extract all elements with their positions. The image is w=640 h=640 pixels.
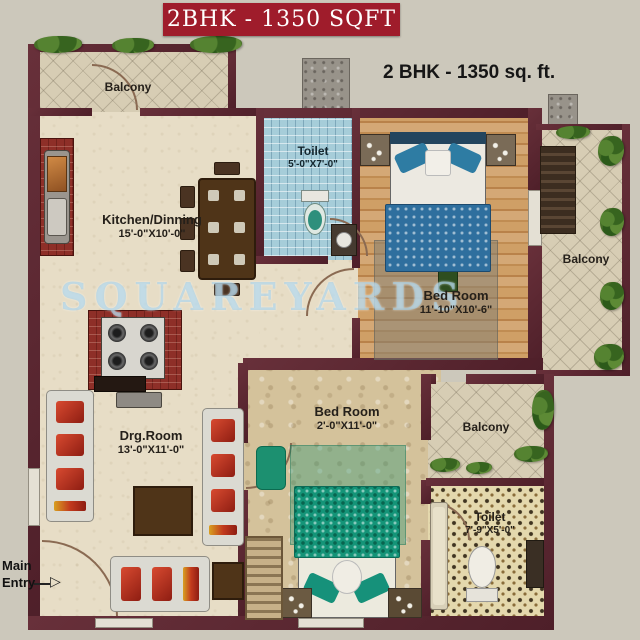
dining-chair-3: [180, 250, 195, 272]
balcony-top-label: Balcony: [88, 80, 168, 95]
bedroom-bottom-nightstand-right: [388, 588, 422, 618]
toilet-bottom-label: Toilet 7'-9"X5'-0": [450, 510, 530, 538]
stove-burner-2: [140, 324, 158, 342]
toilet-top-tank: [301, 190, 329, 202]
kitchen-label: Kitchen/Dinning 15'-0"X10'-0": [72, 212, 232, 242]
coffee-table: [133, 486, 193, 536]
wall-top-mid: [260, 108, 542, 118]
toilet-top-basin: [336, 232, 352, 248]
wall-balcony-right-outer: [622, 124, 630, 376]
sofa-cushion: [56, 468, 84, 490]
entry-arrow-icon: ▷: [50, 573, 61, 590]
bedroom-bottom-nightstand-left: [282, 588, 312, 618]
room-name: Bed Room: [398, 288, 514, 304]
floorplan-page: { "banner": {"title": "2BHK - 1350 SQFT"…: [0, 0, 640, 640]
entry-arrow-line: [34, 583, 50, 585]
dining-plate-6: [234, 254, 245, 265]
bedroom-bottom-pillow-center: [332, 560, 362, 594]
sofa-cushion: [152, 567, 172, 600]
shaft-block-top: [302, 58, 350, 112]
room-size: 7'-9"X5'-0": [450, 525, 530, 538]
room-name: Drg.Room: [84, 428, 218, 444]
balcony-bottom-label: Balcony: [446, 420, 526, 435]
room-name: Balcony: [550, 252, 622, 267]
room-name: Balcony: [88, 80, 168, 95]
room-size: 13'-0"X11'-0": [84, 444, 218, 458]
wall-bedroom2-right-a: [421, 374, 431, 440]
room-size: 2'-0"X11'-0": [292, 420, 402, 434]
dining-plate-2: [234, 190, 245, 201]
window-bottom-drg: [95, 618, 153, 628]
bathtub-inner: [433, 507, 445, 605]
bedroom-top-label: Bed Room 11'-10"X10'-6": [398, 288, 514, 318]
room-name: Bed Room: [292, 404, 402, 420]
bedroom-bottom-quilt: [294, 486, 400, 558]
main-entry-line1: Main: [2, 558, 44, 575]
wall-bedroom-top-right-b: [528, 246, 542, 368]
toilet-top-label: Toilet 5'-0"X7'-0": [274, 144, 352, 172]
wall-left-outer: [28, 44, 40, 630]
window-bottom-bedroom: [298, 618, 364, 628]
wall-balcony-right-end: [228, 44, 236, 114]
window-left-drg: [28, 468, 40, 526]
toilet-top-wc-seat: [308, 210, 322, 230]
wall-toilet-balcony-divider: [426, 478, 546, 486]
dining-plate-4: [234, 222, 245, 233]
side-table: [212, 562, 244, 600]
dining-chair-1: [180, 186, 195, 208]
kitchen-sink-board: [47, 156, 67, 192]
sofa-throw: [183, 567, 199, 600]
wall-kitchen-toilet: [256, 108, 264, 264]
wall-balcony-kitchen-b: [140, 108, 268, 116]
balcony-right-label: Balcony: [550, 252, 622, 267]
sofa-throw: [54, 501, 86, 511]
bedroom-top-headboard: [390, 132, 486, 144]
tv-unit: [94, 376, 146, 392]
room-name: Toilet: [274, 144, 352, 159]
room-size: 5'-0"X7'-0": [274, 159, 352, 172]
wall-balcony-kitchen-a: [28, 108, 92, 116]
sofa-cushion: [56, 434, 84, 456]
toilet-bottom-tank: [466, 588, 498, 602]
dining-plate-5: [208, 254, 219, 265]
bedroom-bottom-chair: [256, 446, 286, 490]
bedroom-top-nightstand-left: [360, 134, 390, 166]
sofa-cushion: [211, 489, 235, 512]
room-name: Balcony: [446, 420, 526, 435]
dining-plate-1: [208, 190, 219, 201]
sofa-throw: [209, 525, 237, 535]
bedroom-top-quilt: [385, 204, 491, 272]
plan-heading: 2 BHK - 1350 sq. ft.: [383, 62, 603, 92]
sofa-bottom: [110, 556, 210, 612]
room-name: Kitchen/Dinning: [72, 212, 232, 228]
toilet-bottom-vanity: [526, 540, 544, 588]
kitchen-sink-basin: [47, 198, 67, 236]
room-size: 15'-0"X10'-0": [72, 228, 232, 242]
kitchen-appliance: [116, 392, 162, 408]
bedroom-bottom-label: Bed Room 2'-0"X11'-0": [292, 404, 402, 434]
main-entry-label: Main Entry: [2, 558, 44, 592]
room-size: 11'-10"X10'-6": [398, 304, 514, 318]
bedroom-top-nightstand-right: [486, 134, 516, 166]
title-banner: 2BHK - 1350 SQFT: [163, 3, 400, 36]
wardrobe: [245, 536, 283, 620]
stove-burner-1: [108, 324, 126, 342]
sofa-cushion: [56, 401, 84, 423]
wall-toilet-top-bottom: [256, 256, 328, 264]
wall-balcony-bottom-top-b: [466, 374, 546, 384]
room-name: Toilet: [450, 510, 530, 525]
sofa-cushion: [121, 567, 141, 600]
stove-burner-4: [140, 352, 158, 370]
bedroom-top-pillow-center: [425, 150, 451, 176]
dining-chair-4: [214, 162, 240, 175]
utility-duct: [540, 146, 576, 234]
drawing-room-label: Drg.Room 13'-0"X11'-0": [84, 428, 218, 458]
stove-burner-3: [108, 352, 126, 370]
